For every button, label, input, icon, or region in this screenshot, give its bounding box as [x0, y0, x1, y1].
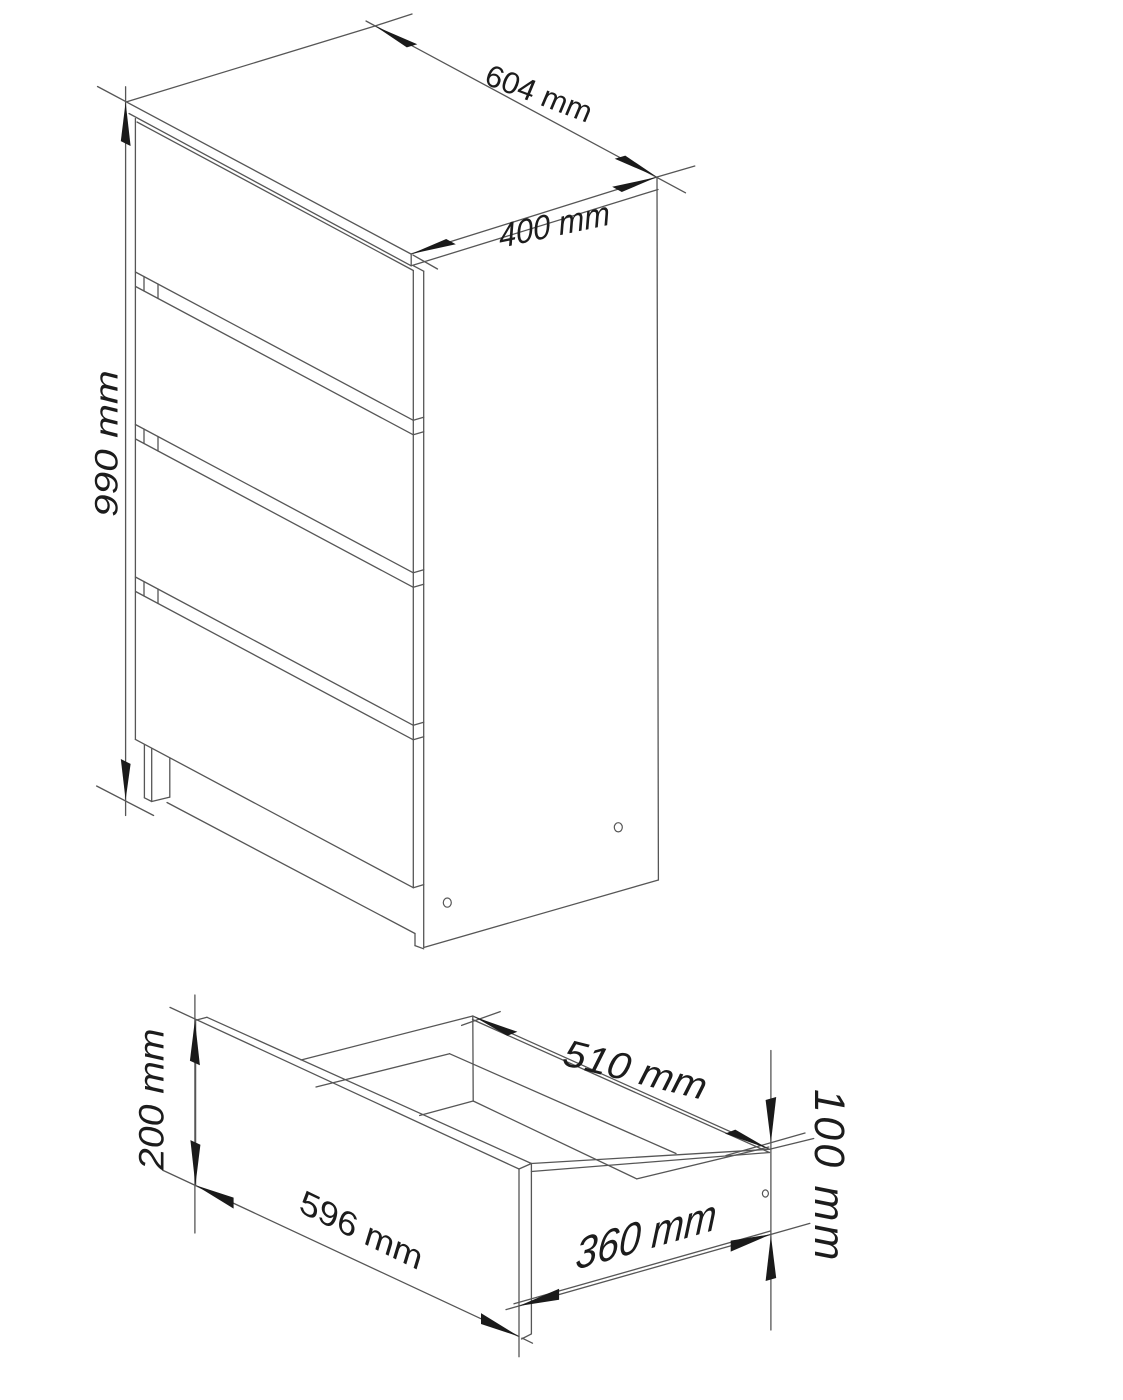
- svg-text:100 mm: 100 mm: [805, 1089, 853, 1264]
- svg-text:990 mm: 990 mm: [89, 370, 125, 517]
- svg-text:200 mm: 200 mm: [131, 1028, 171, 1171]
